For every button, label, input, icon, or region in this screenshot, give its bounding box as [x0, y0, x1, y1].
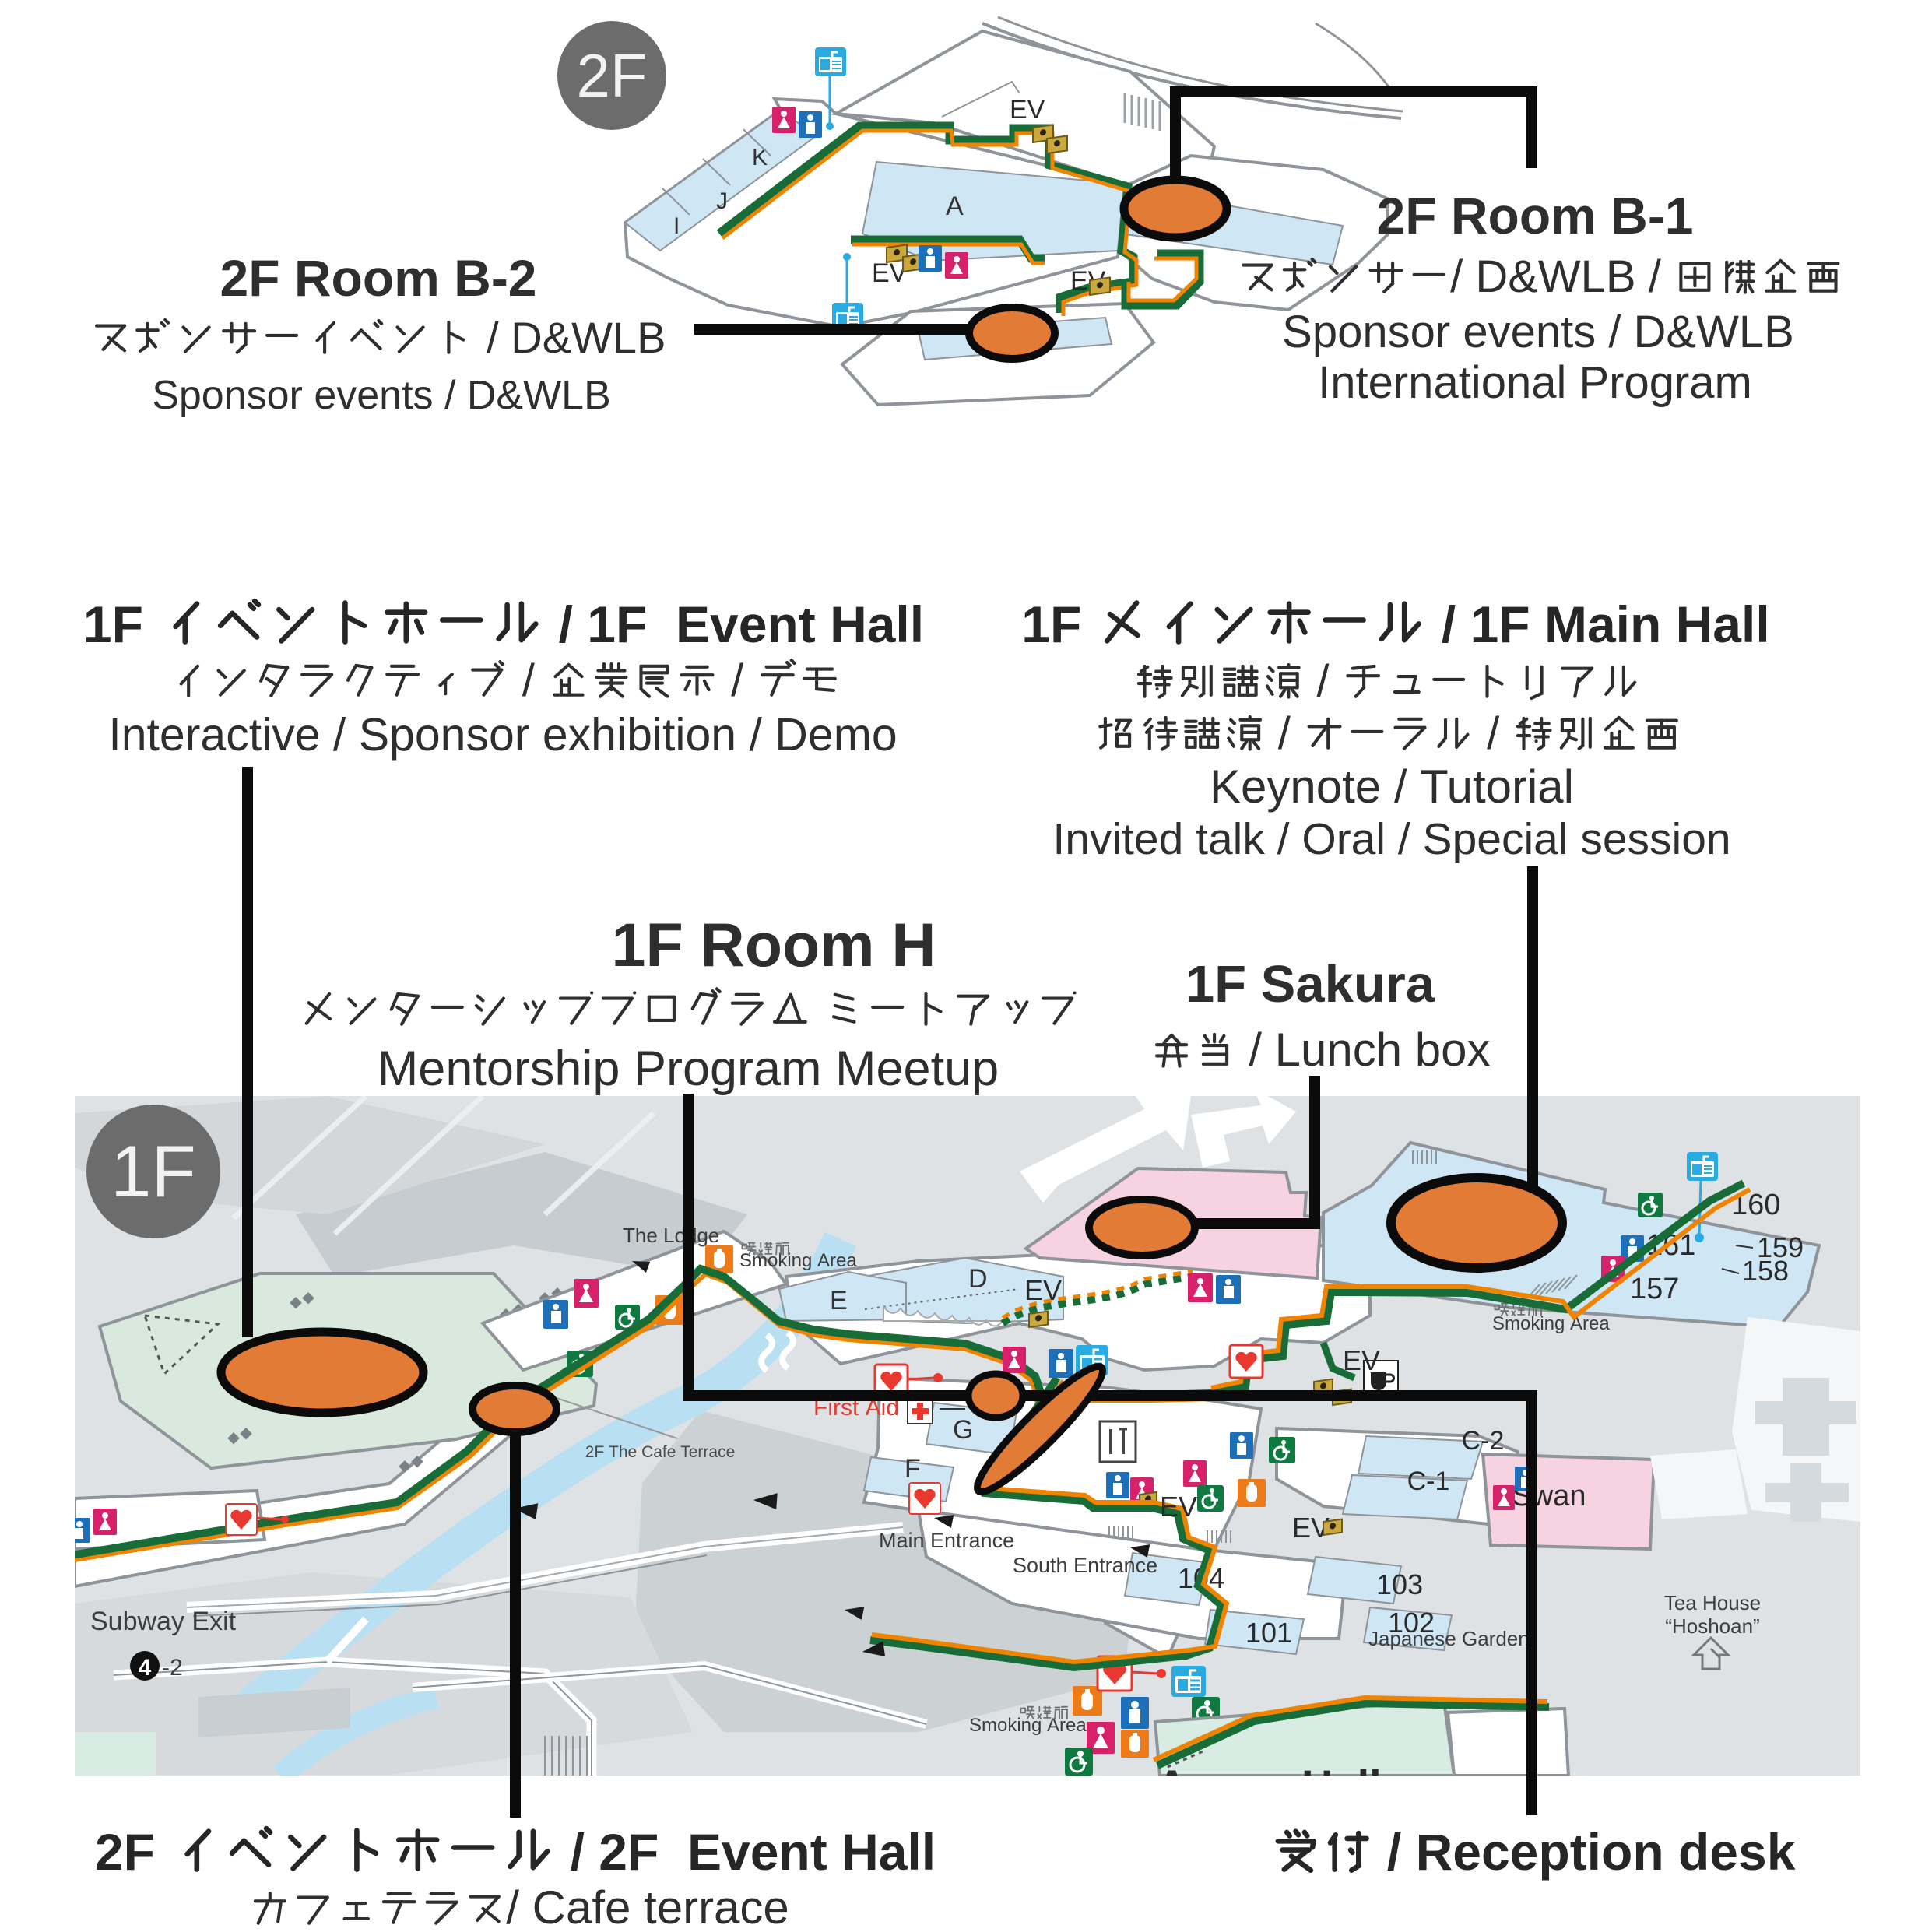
- svg-text:/: /: [1474, 708, 1512, 759]
- svg-text:/ Reception desk: / Reception desk: [1373, 1823, 1796, 1881]
- svg-text:/ D&WLB /: / D&WLB /: [1450, 251, 1674, 302]
- svg-text:Keynote / Tutorial: Keynote / Tutorial: [1210, 761, 1574, 813]
- svg-text:EV: EV: [1010, 95, 1045, 125]
- svg-text:2F The Cafe Terrace: 2F The Cafe Terrace: [585, 1443, 736, 1461]
- svg-text:158: 158: [1742, 1255, 1789, 1287]
- svg-text:J: J: [716, 188, 728, 214]
- svg-text:1F Sakura: 1F Sakura: [1186, 955, 1435, 1013]
- svg-text:Smoking Area: Smoking Area: [1492, 1313, 1610, 1334]
- svg-text:Smoking Area: Smoking Area: [739, 1250, 857, 1271]
- svg-text:/ 1F Main Hall: / 1F Main Hall: [1428, 595, 1770, 653]
- svg-text:4: 4: [139, 1655, 152, 1681]
- svg-text:Mentorship Program Meetup: Mentorship Program Meetup: [378, 1042, 999, 1096]
- svg-text:Japanese Garden: Japanese Garden: [1368, 1627, 1530, 1650]
- svg-text:G: G: [953, 1415, 973, 1445]
- svg-text:EV: EV: [872, 258, 908, 288]
- svg-text:/ 2F Event Hall: / 2F Event Hall: [556, 1823, 936, 1881]
- svg-text:D: D: [968, 1264, 988, 1294]
- svg-text:2F: 2F: [95, 1823, 169, 1881]
- svg-text:“Hoshoan”: “Hoshoan”: [1665, 1614, 1759, 1638]
- svg-text:/: /: [718, 655, 756, 706]
- svg-text:Sponsor events / D&WLB: Sponsor events / D&WLB: [152, 373, 611, 418]
- svg-text:South Entrance: South Entrance: [1013, 1554, 1157, 1577]
- svg-text:A: A: [946, 191, 964, 221]
- svg-text:Sponsor events / D&WLB: Sponsor events / D&WLB: [1282, 307, 1794, 357]
- svg-text:K: K: [752, 145, 768, 170]
- svg-text:The Lodge: The Lodge: [623, 1224, 719, 1247]
- svg-text:/ 1F Event Hall: / 1F Event Hall: [544, 595, 924, 653]
- svg-text:1F Room H: 1F Room H: [612, 910, 936, 979]
- svg-text:/ Cafe terrace: / Cafe terrace: [506, 1881, 789, 1932]
- svg-text:1F: 1F: [1021, 595, 1095, 653]
- svg-text:103: 103: [1376, 1568, 1423, 1600]
- svg-text:F: F: [905, 1454, 921, 1484]
- svg-text:C-1: C-1: [1407, 1467, 1450, 1496]
- svg-text:/ Lunch box: / Lunch box: [1236, 1024, 1491, 1076]
- svg-text:2F Room B-2: 2F Room B-2: [220, 249, 536, 307]
- svg-text:1F: 1F: [111, 1130, 196, 1212]
- svg-text:Main Entrance: Main Entrance: [879, 1529, 1014, 1552]
- svg-text:EV: EV: [1024, 1274, 1062, 1306]
- svg-text:101: 101: [1245, 1617, 1292, 1649]
- svg-text:/: /: [1304, 656, 1341, 707]
- svg-text:/ D&WLB: / D&WLB: [475, 313, 666, 362]
- svg-text:/: /: [510, 655, 547, 706]
- svg-text:International Program: International Program: [1318, 357, 1752, 408]
- svg-text:C-2: C-2: [1462, 1426, 1505, 1456]
- svg-text:EV: EV: [1343, 1344, 1380, 1376]
- svg-text:Tea House: Tea House: [1664, 1591, 1761, 1614]
- svg-text:1F: 1F: [83, 595, 157, 653]
- svg-text:I: I: [673, 213, 680, 239]
- svg-text:E: E: [830, 1286, 848, 1316]
- svg-text:157: 157: [1630, 1273, 1679, 1305]
- svg-text:Interactive / Sponsor exhibiti: Interactive / Sponsor exhibition / Demo: [108, 709, 897, 761]
- svg-text:/: /: [1266, 708, 1303, 759]
- svg-text:Invited talk / Oral / Special: Invited talk / Oral / Special session: [1052, 814, 1730, 864]
- svg-text:EV: EV: [1160, 1491, 1197, 1523]
- svg-text:2F Room B-1: 2F Room B-1: [1376, 187, 1693, 244]
- svg-text:2F: 2F: [576, 41, 647, 110]
- svg-text:-2: -2: [162, 1655, 183, 1681]
- svg-text:Subway Exit: Subway Exit: [90, 1607, 237, 1636]
